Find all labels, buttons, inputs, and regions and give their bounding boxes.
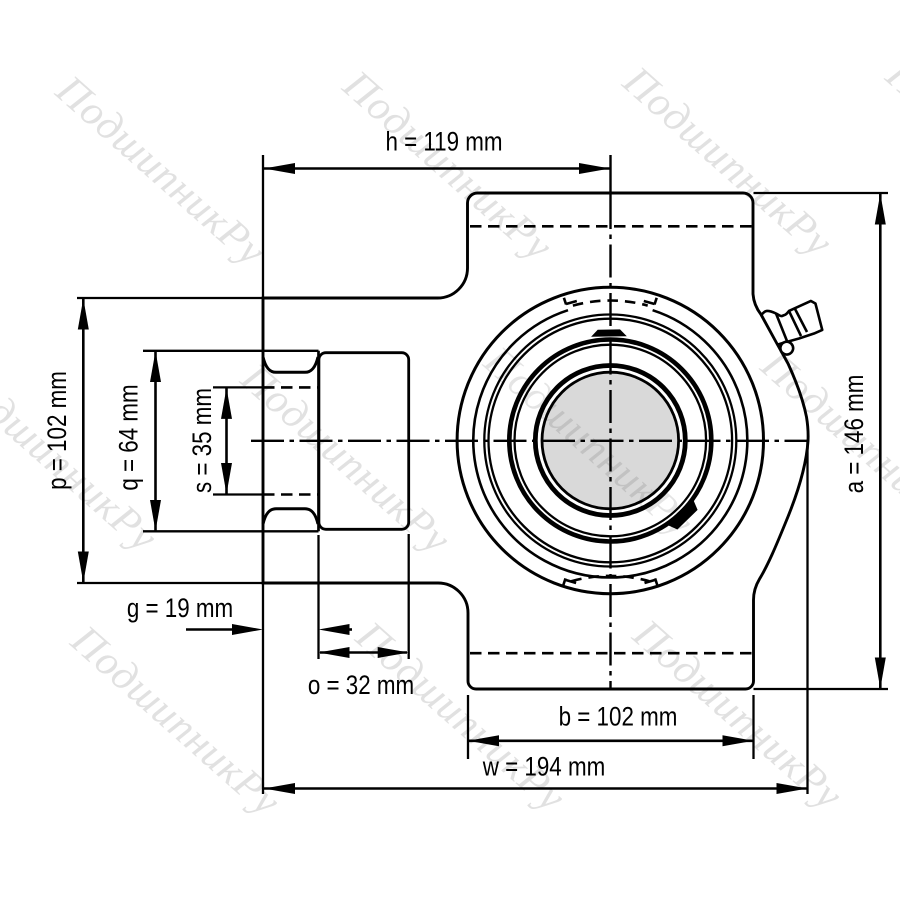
svg-text:h = 119 mm: h = 119 mm <box>385 128 502 157</box>
svg-text:s = 35 mm: s = 35 mm <box>188 388 217 493</box>
svg-text:b = 102 mm: b = 102 mm <box>559 703 678 732</box>
svg-text:p = 102 mm: p = 102 mm <box>43 371 72 490</box>
svg-text:a = 146 mm: a = 146 mm <box>840 375 869 494</box>
svg-text:w = 194 mm: w = 194 mm <box>482 753 605 782</box>
svg-text:q = 64 mm: q = 64 mm <box>115 384 144 490</box>
svg-text:o = 32 mm: o = 32 mm <box>308 671 414 700</box>
svg-text:g = 19 mm: g = 19 mm <box>127 594 233 623</box>
